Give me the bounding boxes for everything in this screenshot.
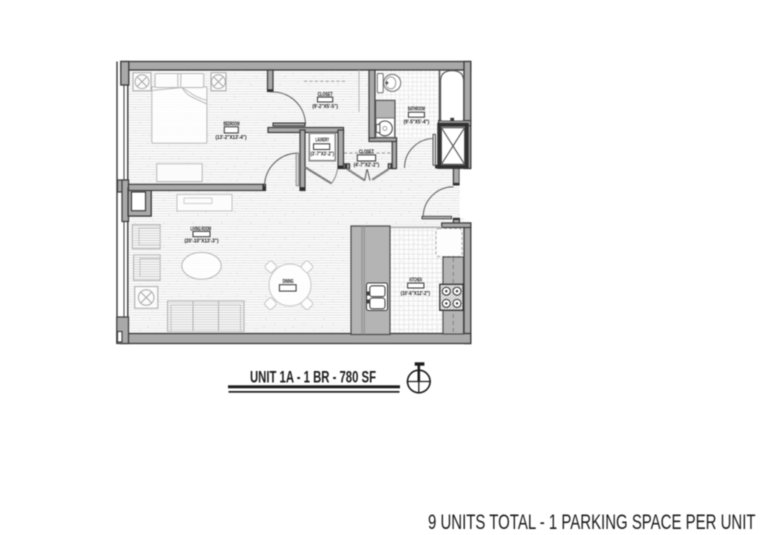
svg-text:BATHROOM: BATHROOM [408, 106, 425, 112]
svg-text:(13'-2"X13'-4"): (13'-2"X13'-4") [216, 135, 247, 141]
svg-text:UNIT 1A - 1 BR - 780 SF: UNIT 1A - 1 BR - 780 SF [250, 369, 376, 387]
svg-text:(4'-7"X2'-2"): (4'-7"X2'-2") [354, 163, 380, 169]
svg-text:(9'-5"X5'-4"): (9'-5"X5'-4") [404, 120, 430, 126]
svg-text:(20'-10"X13'-3"): (20'-10"X13'-3") [185, 239, 219, 245]
svg-text:(9'-2"X5'-5"): (9'-2"X5'-5") [312, 104, 338, 110]
svg-text:DINING: DINING [283, 279, 294, 285]
svg-text:LAUNDRY: LAUNDRY [316, 138, 330, 144]
svg-text:(10'-6"X12'-2"): (10'-6"X12'-2") [401, 291, 431, 297]
svg-text:9 UNITS TOTAL - 1 PARKING SPAC: 9 UNITS TOTAL - 1 PARKING SPACE PER UNIT [428, 510, 756, 534]
svg-text:(3'-7"X3'-2"): (3'-7"X3'-2") [311, 151, 335, 157]
